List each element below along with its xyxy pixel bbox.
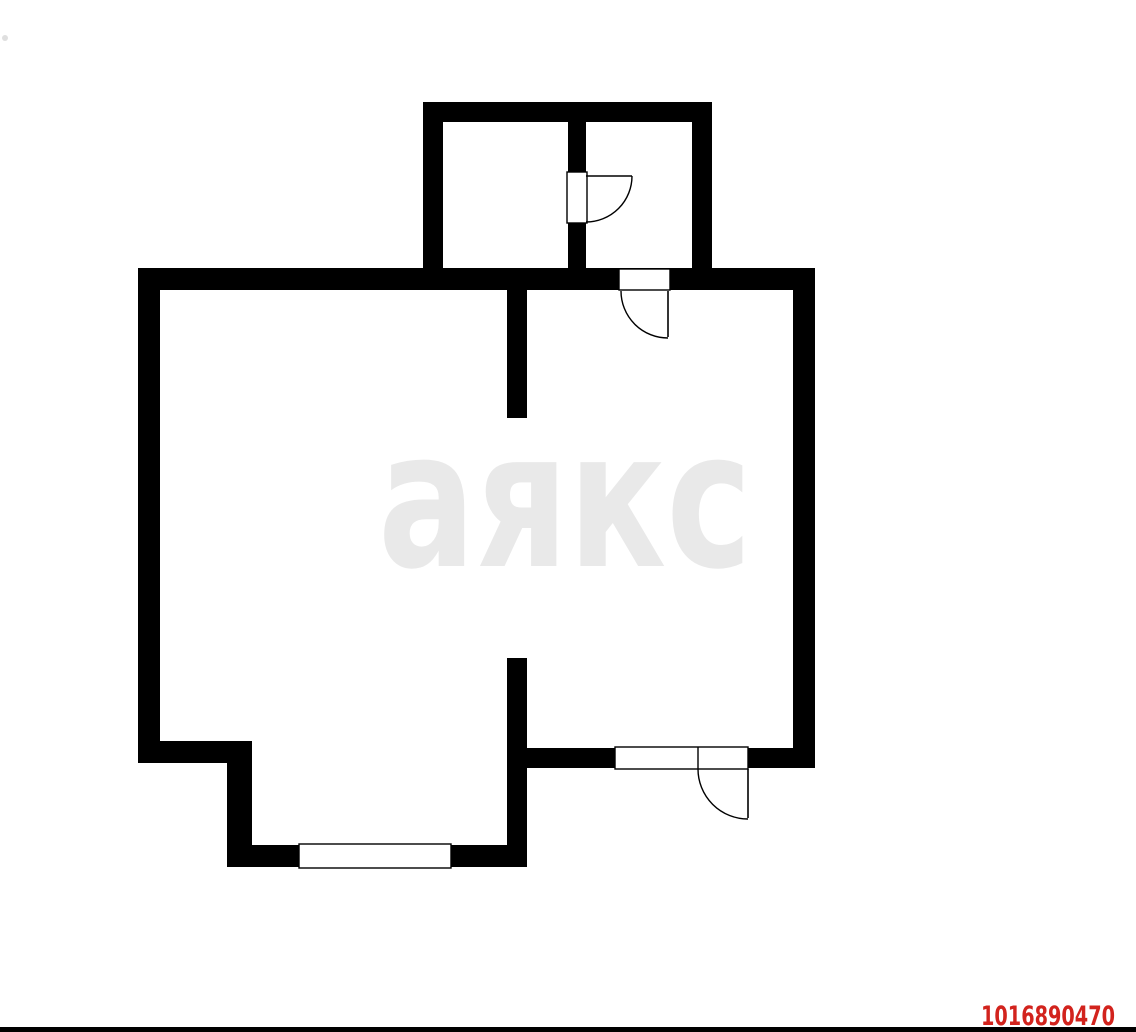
- top-left-artifact: [2, 35, 8, 41]
- bottom-door-opening: [615, 747, 748, 769]
- plan-svg: аякс 1016890470: [0, 0, 1136, 1032]
- wall-upper-left: [423, 102, 443, 270]
- wall-upper-top: [423, 102, 712, 122]
- top-door-swing-arc: [621, 291, 668, 338]
- wall-stub-upper: [507, 290, 527, 418]
- bottom-bar: [0, 1027, 1136, 1032]
- bottom-door-swing-arc: [698, 769, 748, 819]
- upper-door-opening: [567, 172, 587, 223]
- watermark-text: аякс: [378, 390, 752, 611]
- wall-main-right: [793, 268, 815, 768]
- wall-main-left: [138, 268, 160, 763]
- upper-door-swing-arc: [586, 176, 632, 222]
- balcony-window: [299, 844, 451, 868]
- top-door-opening: [619, 269, 670, 290]
- floor-plan-page: аякс 1016890470: [0, 0, 1136, 1032]
- wall-main-top: [138, 268, 815, 290]
- wall-upper-right: [692, 102, 712, 270]
